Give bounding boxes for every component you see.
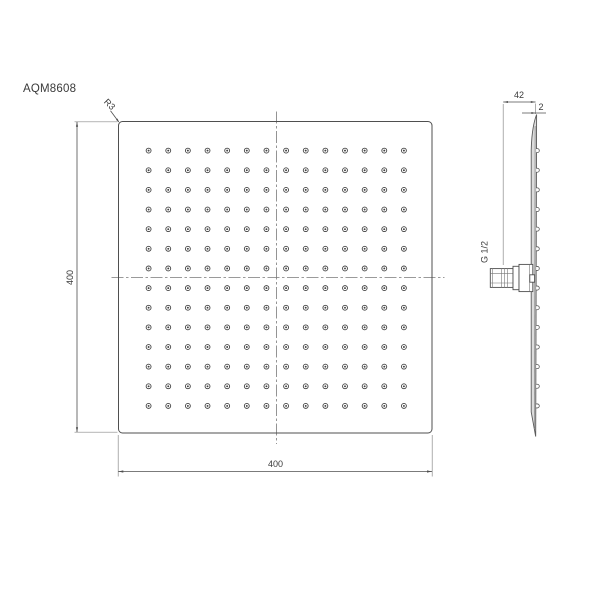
nozzle [244, 403, 249, 408]
width-dimension: 400 [118, 435, 432, 477]
nozzle [382, 187, 387, 192]
nozzle [244, 266, 249, 271]
thickness-dimension-label: 2 [538, 102, 543, 112]
nozzle [185, 207, 190, 212]
nozzle [382, 168, 387, 173]
nozzle [146, 305, 151, 310]
nozzle [166, 364, 171, 369]
nozzle [362, 148, 367, 153]
nozzle [146, 187, 151, 192]
nozzle [264, 345, 269, 350]
nozzle [225, 246, 230, 251]
nozzle [382, 305, 387, 310]
nozzle [205, 227, 210, 232]
nozzle [343, 325, 348, 330]
corner-radius-label: R3 [102, 97, 117, 112]
nozzle [225, 207, 230, 212]
nozzle [225, 384, 230, 389]
nozzle [343, 266, 348, 271]
nozzle [343, 403, 348, 408]
depth-dimension-label: 42 [514, 90, 524, 100]
nozzle [205, 168, 210, 173]
nozzle [401, 207, 406, 212]
connector-flange [513, 266, 519, 289]
nozzle [166, 345, 171, 350]
nozzle [362, 266, 367, 271]
nozzle [185, 227, 190, 232]
nozzle [264, 305, 269, 310]
nozzle-bump [536, 149, 539, 153]
nozzle [166, 168, 171, 173]
nozzle [185, 325, 190, 330]
nozzle [284, 187, 289, 192]
nozzle [205, 246, 210, 251]
nozzle [401, 266, 406, 271]
nozzle [323, 403, 328, 408]
nozzle [303, 266, 308, 271]
nozzle [225, 168, 230, 173]
nozzle [205, 266, 210, 271]
nozzle [264, 168, 269, 173]
nozzle [284, 286, 289, 291]
nozzle [362, 384, 367, 389]
nozzle [382, 325, 387, 330]
nozzle [264, 207, 269, 212]
nozzle [225, 148, 230, 153]
nozzle [244, 384, 249, 389]
drawing-canvas: AQM8608 400 400 [0, 0, 600, 600]
nozzle [244, 325, 249, 330]
nozzle [401, 246, 406, 251]
nozzle [244, 207, 249, 212]
nozzle [146, 364, 151, 369]
nozzle [303, 364, 308, 369]
nozzle-bump [536, 404, 539, 408]
nozzle [382, 266, 387, 271]
thickness-dimension: 2 [522, 102, 546, 114]
nozzle [343, 246, 348, 251]
nozzle [205, 364, 210, 369]
nozzle [343, 148, 348, 153]
nozzle [146, 148, 151, 153]
nozzle [244, 364, 249, 369]
nozzle [244, 168, 249, 173]
nozzle [205, 384, 210, 389]
nozzle [264, 187, 269, 192]
nozzle [146, 325, 151, 330]
nozzle [166, 286, 171, 291]
nozzle [284, 246, 289, 251]
nozzle [166, 325, 171, 330]
nozzle [185, 364, 190, 369]
nozzle [323, 345, 328, 350]
nozzle [323, 227, 328, 232]
nozzle [166, 227, 171, 232]
front-view: 400 400 R3 [65, 97, 445, 477]
nozzle [323, 246, 328, 251]
nozzle [284, 227, 289, 232]
nozzle [382, 345, 387, 350]
nozzle [401, 305, 406, 310]
nozzle [146, 227, 151, 232]
nozzle [225, 266, 230, 271]
nozzle [185, 168, 190, 173]
nozzle [225, 364, 230, 369]
nozzle [205, 148, 210, 153]
nozzle [323, 286, 328, 291]
nozzle [166, 403, 171, 408]
nozzle [185, 345, 190, 350]
nozzle [343, 187, 348, 192]
nozzle [382, 403, 387, 408]
nozzle [303, 148, 308, 153]
nozzle [185, 305, 190, 310]
nozzle [225, 345, 230, 350]
nozzle [244, 286, 249, 291]
nozzle [303, 325, 308, 330]
corner-radius-callout: R3 [102, 97, 119, 123]
nozzle [382, 148, 387, 153]
nozzle [284, 168, 289, 173]
nozzle [362, 325, 367, 330]
nozzle [166, 148, 171, 153]
nozzle [401, 227, 406, 232]
nozzle [382, 364, 387, 369]
nozzle [362, 246, 367, 251]
nozzle [284, 207, 289, 212]
nozzle [264, 384, 269, 389]
nozzle [343, 227, 348, 232]
nozzle [323, 207, 328, 212]
nozzle [382, 227, 387, 232]
nozzle [401, 325, 406, 330]
nozzle [303, 305, 308, 310]
nozzle [146, 266, 151, 271]
nozzle-bump [536, 247, 539, 251]
nozzle [166, 305, 171, 310]
nozzle [343, 305, 348, 310]
nozzle [343, 207, 348, 212]
height-dimension: 400 [65, 122, 118, 432]
height-dimension-label: 400 [65, 270, 75, 285]
nozzle [205, 286, 210, 291]
nozzle [382, 207, 387, 212]
nozzle [284, 305, 289, 310]
nozzle [284, 384, 289, 389]
nozzle [323, 325, 328, 330]
nozzle [382, 286, 387, 291]
nozzle [303, 403, 308, 408]
nozzle [264, 403, 269, 408]
nozzle-bump [536, 227, 539, 231]
nozzle [343, 286, 348, 291]
nozzle [362, 305, 367, 310]
nozzle [185, 246, 190, 251]
nozzle [343, 345, 348, 350]
nozzle [264, 364, 269, 369]
nozzle [264, 148, 269, 153]
nozzle [185, 187, 190, 192]
nozzle-bump [536, 306, 539, 310]
nozzle [225, 286, 230, 291]
connector-stub [530, 275, 535, 282]
nozzle-bump [536, 168, 539, 172]
side-view: 42 2 G 1/2 [480, 90, 547, 437]
nozzle [303, 207, 308, 212]
nozzle [264, 227, 269, 232]
nozzle [284, 403, 289, 408]
width-dimension-label: 400 [268, 459, 283, 469]
nozzle [244, 148, 249, 153]
nozzle [401, 286, 406, 291]
nozzle [205, 345, 210, 350]
nozzle [323, 384, 328, 389]
nozzle [303, 168, 308, 173]
nozzle [166, 246, 171, 251]
nozzle [166, 384, 171, 389]
thread-size-label: G 1/2 [480, 241, 490, 263]
nozzle [244, 345, 249, 350]
nozzle [185, 148, 190, 153]
nozzle [323, 148, 328, 153]
nozzle-bump [536, 188, 539, 192]
nozzle [401, 148, 406, 153]
nozzle [362, 286, 367, 291]
nozzle [303, 286, 308, 291]
nozzle [303, 384, 308, 389]
nozzle [225, 227, 230, 232]
nozzle [146, 384, 151, 389]
nozzle [244, 305, 249, 310]
nozzle-bump [536, 384, 539, 388]
nozzle [362, 364, 367, 369]
nozzle [146, 207, 151, 212]
nozzle [264, 266, 269, 271]
nozzle [146, 286, 151, 291]
nozzle [343, 384, 348, 389]
nozzle [225, 325, 230, 330]
nozzle [303, 345, 308, 350]
nozzle [362, 168, 367, 173]
nozzle-bump [536, 266, 539, 270]
nozzle [225, 187, 230, 192]
nozzle [284, 325, 289, 330]
nozzle [146, 168, 151, 173]
nozzle [303, 187, 308, 192]
nozzle [264, 325, 269, 330]
nozzle [185, 266, 190, 271]
nozzle [185, 384, 190, 389]
nozzle [362, 187, 367, 192]
nozzle [264, 286, 269, 291]
nozzle [323, 364, 328, 369]
nozzle [166, 207, 171, 212]
inlet-connector [490, 264, 534, 291]
nozzle [323, 187, 328, 192]
nozzle [401, 168, 406, 173]
nozzle [303, 227, 308, 232]
nozzle [205, 187, 210, 192]
nozzle [362, 403, 367, 408]
nozzle [264, 246, 269, 251]
nozzle [185, 403, 190, 408]
nozzle [205, 305, 210, 310]
nozzle [284, 148, 289, 153]
nozzle [362, 207, 367, 212]
nozzle [166, 187, 171, 192]
nozzle-bump [536, 286, 539, 290]
nozzle [146, 403, 151, 408]
nozzle [343, 364, 348, 369]
nozzle [205, 325, 210, 330]
nozzle [244, 227, 249, 232]
nozzle [166, 266, 171, 271]
nozzle [205, 403, 210, 408]
nozzle [382, 246, 387, 251]
nozzle [284, 266, 289, 271]
nozzle [225, 403, 230, 408]
nozzle [323, 305, 328, 310]
nozzle [146, 345, 151, 350]
nozzle [146, 246, 151, 251]
nozzle [401, 403, 406, 408]
nozzle-bump [536, 365, 539, 369]
nozzle-bump [536, 208, 539, 212]
nozzle-bump [536, 345, 539, 349]
nozzle [303, 246, 308, 251]
nozzle [382, 384, 387, 389]
nozzle [225, 305, 230, 310]
nozzle [401, 345, 406, 350]
nozzle [244, 187, 249, 192]
nozzle [323, 168, 328, 173]
technical-drawing: AQM8608 400 400 [0, 0, 600, 600]
nozzle-bump [536, 325, 539, 329]
nozzle [323, 266, 328, 271]
nozzle [401, 384, 406, 389]
nozzle [401, 364, 406, 369]
nozzle [244, 246, 249, 251]
depth-dimension: 42 [503, 90, 535, 265]
nozzle [343, 168, 348, 173]
nozzle [401, 187, 406, 192]
nozzle [284, 364, 289, 369]
nozzle [362, 345, 367, 350]
nozzle [284, 345, 289, 350]
model-number: AQM8608 [23, 83, 76, 95]
nozzle [205, 207, 210, 212]
nozzle [362, 227, 367, 232]
nozzle [185, 286, 190, 291]
